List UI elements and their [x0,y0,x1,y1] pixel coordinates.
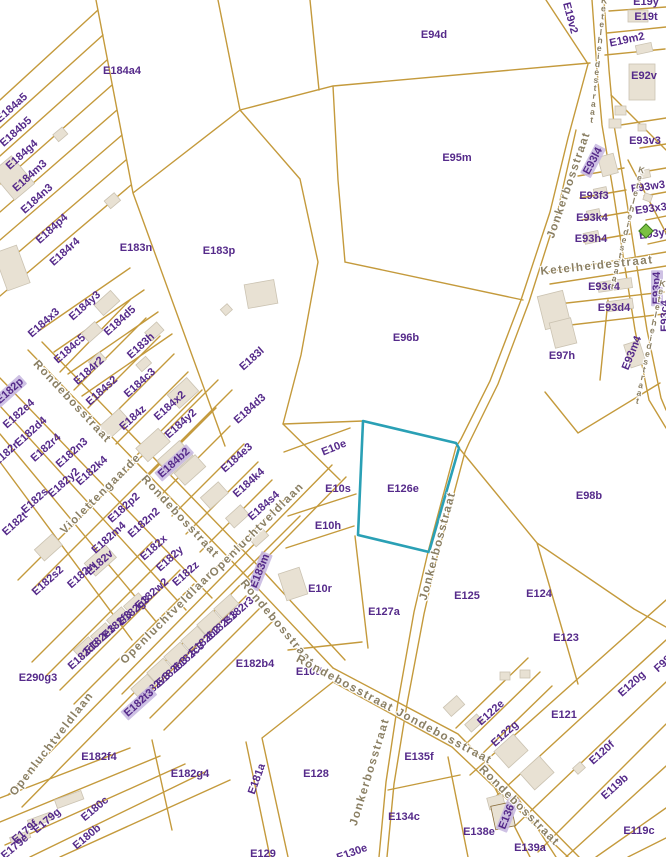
parcel-label-E19t[interactable]: E19t [634,11,657,23]
parcel-label-E10s[interactable]: E10s [325,483,351,495]
map-canvas[interactable]: E184a4E94dE19v2E19yE19tE19m2E92vE93v3E95… [0,0,666,857]
parcel-label-E94d[interactable]: E94d [421,29,447,41]
parcel-label-E19y[interactable]: E19y [633,0,659,8]
parcel-label-E93v3[interactable]: E93v3 [629,135,661,147]
parcel-label-E183n[interactable]: E183n [120,242,152,254]
parcel-label-E183p[interactable]: E183p [203,245,235,257]
parcel-label-E182g4[interactable]: E182g4 [171,768,210,780]
parcel-label-E96b[interactable]: E96b [393,332,419,344]
parcel-label-E127a[interactable]: E127a [368,606,400,618]
parcel-label-E126e[interactable]: E126e [387,483,419,495]
parcel-label-E139a[interactable]: E139a [514,842,546,854]
parcel-label-E98b[interactable]: E98b [576,490,602,502]
parcel-label-E92v[interactable]: E92v [631,70,657,82]
parcel-label-E184a4[interactable]: E184a4 [103,65,141,77]
parcel-label-E93d4[interactable]: E93d4 [598,302,630,314]
parcel-label-E93k4[interactable]: E93k4 [576,212,608,224]
parcel-label-E93f3[interactable]: E93f3 [579,190,608,202]
parcel-label-E95m[interactable]: E95m [442,152,471,164]
parcel-label-E93h4[interactable]: E93h4 [575,233,607,245]
parcel-label-E10h[interactable]: E10h [315,520,341,532]
parcel-label-E123[interactable]: E123 [553,632,579,644]
parcel-label-E182b4[interactable]: E182b4 [236,658,275,670]
parcel-label-E135f[interactable]: E135f [404,751,433,763]
parcel-label-E134c[interactable]: E134c [388,811,420,823]
parcel-label-E128[interactable]: E128 [303,768,329,780]
parcel-label-E10r[interactable]: E10r [308,583,332,595]
parcel-label-E97h[interactable]: E97h [549,350,575,362]
parcel-label-E121[interactable]: E121 [551,709,577,721]
parcel-label-E124[interactable]: E124 [526,588,552,600]
parcel-label-E138e[interactable]: E138e [463,826,495,838]
parcel-label-E182f4[interactable]: E182f4 [81,751,116,763]
parcel-label-E129[interactable]: E129 [250,848,276,857]
parcel-label-E290g3[interactable]: E290g3 [19,672,58,684]
parcel-label-E119c[interactable]: E119c [623,825,654,837]
parcel-label-E125[interactable]: E125 [454,590,480,602]
